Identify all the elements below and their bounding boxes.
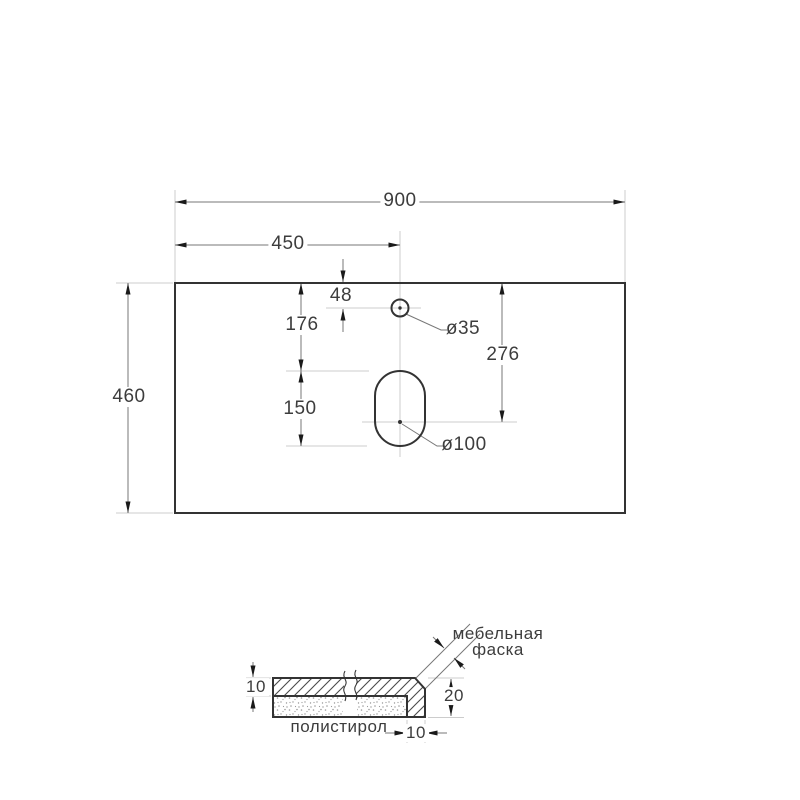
- polystyrene-layer-left: [274, 697, 343, 716]
- chamfer-arrow-2: [454, 658, 465, 669]
- label-furniture-chamfer-line2: фаска: [453, 642, 544, 658]
- label-polystyrene: полистирол: [291, 718, 388, 736]
- dim-text-top-to-drain: 276: [483, 345, 522, 365]
- dim-text-edge-height: 20: [441, 687, 467, 705]
- label-faucet-hole-diameter: ø35: [446, 319, 480, 339]
- dim-text-edge-width: 10: [403, 724, 429, 742]
- label-furniture-chamfer: мебельная фаска: [453, 626, 544, 658]
- faucet-hole-center: [398, 306, 401, 309]
- dim-text-half-width: 450: [268, 234, 307, 254]
- drain-hole-center: [398, 420, 402, 424]
- leader-faucet-hole: [406, 314, 447, 330]
- dim-text-slab-thickness: 10: [243, 678, 269, 696]
- drawing-canvas: 900 450 460 48 176 150 276 ø35 ø100 10 2…: [0, 0, 800, 800]
- extension-lines: [116, 190, 625, 743]
- dim-text-width: 900: [380, 191, 419, 211]
- polystyrene-layer-right: [357, 697, 406, 716]
- slab-hatch-left: [274, 679, 344, 695]
- chamfer-arrow-1: [433, 637, 444, 648]
- dim-text-top-to-slot: 176: [282, 315, 321, 335]
- label-drain-hole-diameter: ø100: [441, 435, 486, 455]
- dim-text-depth: 460: [109, 387, 148, 407]
- dimension-lines: [128, 202, 625, 733]
- dim-text-faucet-offset: 48: [327, 286, 355, 306]
- countertop-section-view: [273, 670, 425, 717]
- dim-text-slot-height: 150: [280, 399, 319, 419]
